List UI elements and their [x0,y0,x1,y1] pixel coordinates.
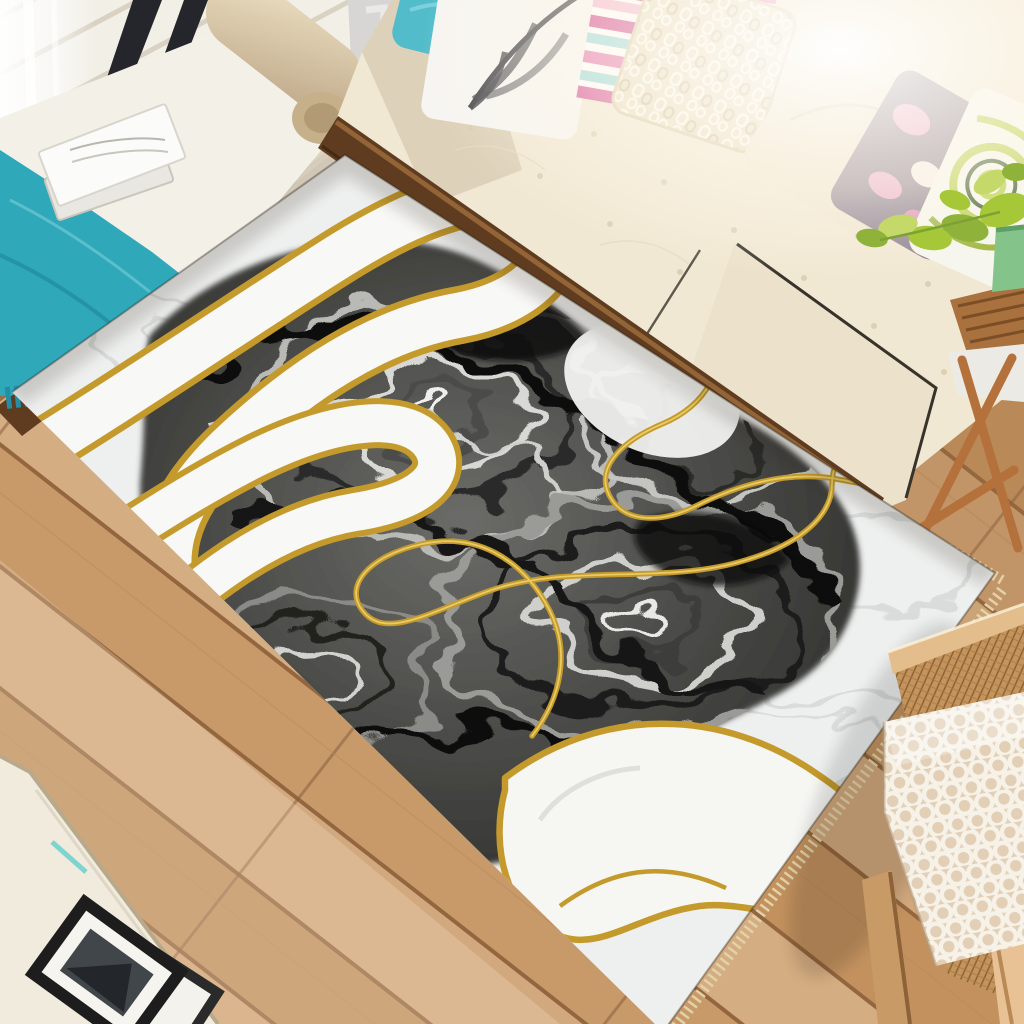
plant-pot [992,225,1024,292]
scene-canvas [0,0,1024,1024]
table-apron [948,344,1024,402]
living-room-photo [0,0,1024,1024]
